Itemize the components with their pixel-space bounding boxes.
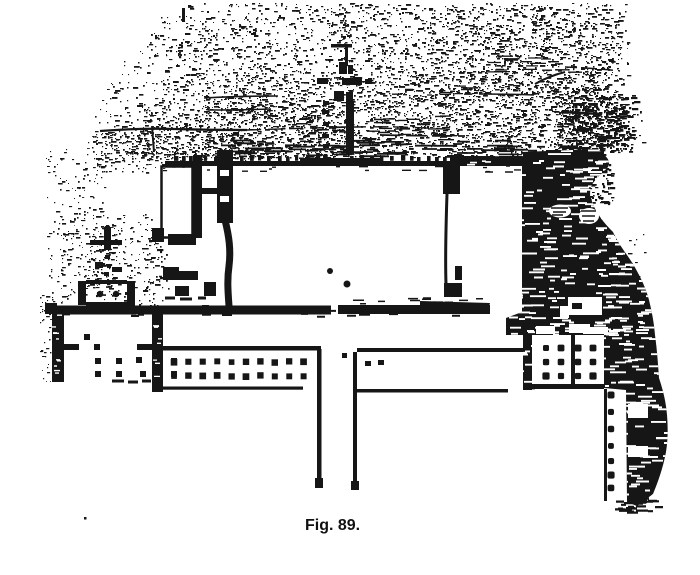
svg-text:Fig. 89.: Fig. 89. <box>305 517 360 534</box>
